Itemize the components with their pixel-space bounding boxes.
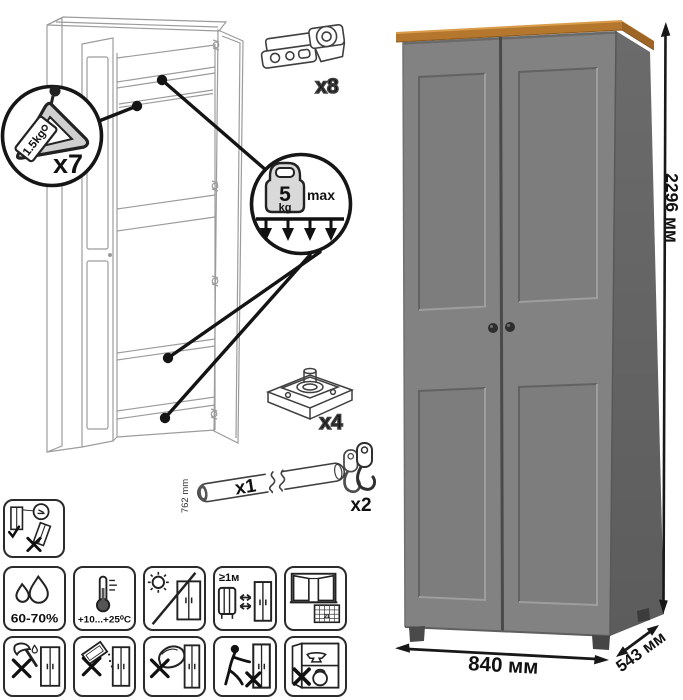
- max-label: max: [307, 187, 335, 203]
- care-icon-ventilate-room: 21: [284, 566, 347, 631]
- anti-tip-icon: [5, 501, 63, 556]
- hook-count: x2: [350, 495, 371, 516]
- wardrobe-render: [396, 21, 664, 650]
- height-dimension-label: 2296 мм: [662, 173, 682, 243]
- hook-hardware-icon: x2: [344, 443, 375, 516]
- door-gap: [501, 37, 503, 632]
- svg-text:+10...+25⁰C: +10...+25⁰C: [78, 614, 131, 625]
- rod-count: x1: [233, 475, 258, 499]
- care-icon-keep-1m-from-heaters: ≥1м: [213, 566, 277, 631]
- overload-icon: [286, 638, 345, 695]
- svg-text:21: 21: [324, 614, 330, 620]
- width-dimension-label: 840 мм: [468, 652, 539, 679]
- hanger-callout: 1.5kg x7: [3, 86, 102, 186]
- wardrobe-line-drawing: [47, 17, 243, 452]
- humidity-icon: 60-70%: [5, 568, 64, 629]
- weight-icon: 5 kg: [266, 163, 304, 214]
- pushing-person-icon: [215, 638, 275, 695]
- abrasive-powder-icon: [75, 638, 134, 695]
- care-icon-temperature-range: +10...+25⁰C: [73, 566, 136, 631]
- rod-hardware-icon: x1 762 mm: [180, 460, 346, 513]
- care-icon-do-not-overload: [284, 636, 347, 697]
- rod-length-label: 762 mm: [180, 479, 191, 513]
- sunlight-icon: [145, 568, 204, 629]
- foot-count: x4: [319, 411, 343, 434]
- product-sheet: { "product": { "dimensions": { "height":…: [0, 0, 683, 700]
- care-icon-no-abrasive-cleaners: [73, 636, 136, 697]
- axe-icon: [5, 638, 64, 695]
- care-icon-humidity-range: 60-70%: [3, 566, 66, 631]
- svg-text:60-70%: 60-70%: [11, 611, 59, 625]
- heater-distance-icon: ≥1м: [215, 568, 275, 629]
- shelf-load-callout: 5 kg max: [252, 155, 351, 254]
- hinge-count: x8: [315, 75, 339, 98]
- foot-hardware-icon: x4: [268, 369, 352, 435]
- care-icon-do-not-push: [213, 636, 277, 697]
- care-icon-no-sharp-impact: [3, 636, 66, 697]
- open-window-icon: 21: [286, 568, 345, 629]
- care-icon-anti-tip-fix-upright: [3, 499, 65, 558]
- thermometer-icon: +10...+25⁰C: [75, 568, 134, 629]
- care-icon-no-direct-sunlight: [143, 566, 206, 631]
- hanger-count: x7: [53, 149, 83, 179]
- sponge-icon: [145, 638, 204, 695]
- hinge-hardware-icon: x8: [259, 24, 347, 98]
- svg-text:kg: kg: [279, 202, 292, 214]
- svg-text:≥1м: ≥1м: [219, 572, 240, 584]
- care-icon-no-wet-sponge: [143, 636, 206, 697]
